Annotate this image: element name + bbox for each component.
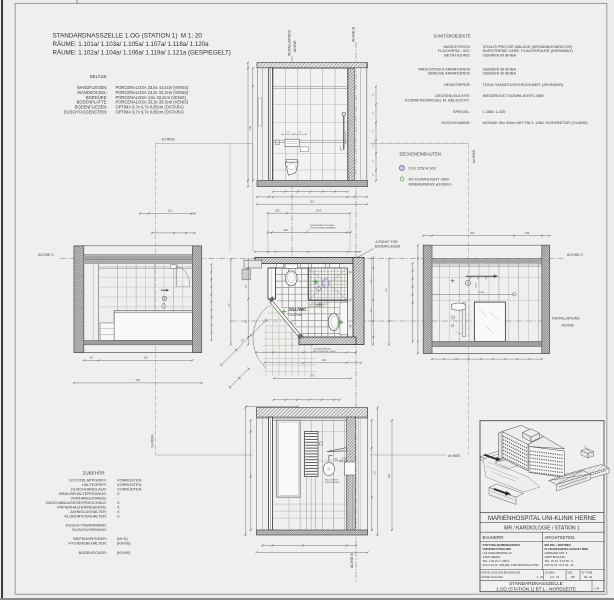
svg-text:150: 150	[525, 231, 530, 235]
svg-text:KOSMETIKSPIEGEL M. BELEUCHT.:: KOSMETIKSPIEGEL M. BELEUCHT.:	[405, 97, 471, 102]
svg-text:RÄUME: 1.102a/ 1.104a/ 1.106a/: RÄUME: 1.102a/ 1.104a/ 1.106a/ 1.119a/ 1…	[53, 50, 231, 57]
svg-text:TEL. 0 23 23 / 1 499-0: TEL. 0 23 23 / 1 499-0	[483, 559, 510, 563]
svg-text:BAUHERR:: BAUHERR:	[483, 535, 505, 540]
svg-text:OPTIMA 9,7x 9,7x 0,85cm (OSTAR: OPTIMA 9,7x 9,7x 0,85cm (OSTARA)	[116, 110, 185, 115]
svg-text:230: 230	[249, 125, 252, 130]
svg-text:1.OG (STATION 1) BT L - NORDSE: 1.OG (STATION 1) BT L - NORDSEITE	[496, 586, 576, 591]
svg-text:44625 HERNE: 44625 HERNE	[483, 555, 501, 559]
svg-text:ZUBEHÖR: ZUBEHÖR	[83, 469, 106, 475]
svg-text:DUSCHTASSENSTEIN:: DUSCHTASSENSTEIN:	[64, 110, 108, 115]
svg-text:UNIVERSITÄTSKLINIK: UNIVERSITÄTSKLINIK	[483, 547, 512, 551]
svg-text:NIEDERVOLT DOWNLIGHTS 35W: NIEDERVOLT DOWNLIGHTS 35W	[483, 93, 544, 98]
svg-text:25.ANNL: 25.ANNL	[545, 571, 555, 574]
svg-text:RÄUME: 1.101a/ 1.103a/ 1.105a/: RÄUME: 1.101a/ 1.103a/ 1.105a/ 1.107a/ 1…	[53, 41, 210, 48]
svg-text:DUSCHKABINE:: DUSCHKABINE:	[441, 120, 470, 125]
svg-text:ACHSE B: ACHSE B	[352, 26, 356, 42]
svg-text:(1.060): (1.060)	[478, 292, 485, 294]
svg-text:-0-PUNKT FÜR: -0-PUNKT FÜR	[375, 240, 398, 244]
svg-text:330: 330	[135, 378, 140, 382]
svg-text:STANDARDNASSZELLE 1.OG (STATIO: STANDARDNASSZELLE 1.OG (STATION 1) M 1: …	[53, 33, 203, 40]
svg-text:EINBAUMASS ø100mm: EINBAUMASS ø100mm	[409, 181, 453, 186]
svg-text:OK 85: OK 85	[475, 283, 477, 288]
svg-text:150: 150	[143, 356, 148, 360]
svg-text:INSTALLATIONS: INSTALLATIONS	[288, 29, 292, 56]
svg-text:4.22 m²: 4.22 m²	[290, 313, 302, 317]
svg-text:110: 110	[283, 228, 288, 232]
svg-text:183: 183	[470, 231, 475, 235]
svg-text:(108/85 VERTIKAL): (108/85 VERTIKAL)	[325, 481, 340, 484]
svg-text:FAX 02 34 / 9 07 62 - 22: FAX 02 34 / 9 07 62 - 22	[545, 563, 575, 567]
svg-text:FAX 0 23 23 / 499-399. 1499 ZE: FAX 0 23 23 / 499-399. 1499 ZENTRALLTUNG	[483, 563, 539, 567]
svg-text:VORRÜSTEN: VORRÜSTEN	[117, 486, 142, 491]
svg-text:BETÄTIGUNG:: BETÄTIGUNG:	[444, 52, 470, 57]
svg-text:AUSSENKANTE ROHBAU: AUSSENKANTE ROHBAU	[310, 224, 335, 227]
svg-text:DECKENEINBAUTEN: DECKENEINBAUTEN	[400, 151, 441, 156]
svg-text:HYGIENEBEHÄLTER:: HYGIENEBEHÄLTER:	[68, 541, 107, 546]
svg-text:1 : 20: 1 : 20	[537, 575, 544, 579]
svg-text:MOSAIK 90x 90cm MIT FALT- UND: MOSAIK 90x 90cm MIT FALT- UND SCHIEBETÜR…	[483, 120, 589, 125]
svg-text:BRAUSE ARMATUREN:: BRAUSE ARMATUREN:	[428, 71, 470, 76]
svg-text:PR: PR	[571, 575, 575, 579]
svg-text:ACHSE: ACHSE	[562, 323, 575, 327]
svg-text:FALT-SCHIEBETÜR (GLAMÜ): FALT-SCHIEBETÜR (GLAMÜ)	[313, 350, 336, 353]
svg-text:FERTIGFUSSBODENMASS: FERTIGFUSSBODENMASS	[310, 227, 336, 230]
svg-text:44807 BOCHUM: 44807 BOCHUM	[545, 555, 566, 559]
svg-text:TOGA /’HANDTUCHTROCKNER’ (ZEHN: TOGA /’HANDTUCHTROCKNER’ (ZEHNDER)	[483, 82, 564, 87]
svg-text:ACHSE B: ACHSE B	[350, 552, 354, 568]
svg-text:DATUM: 20.05.2002 BAUVORLAGE: DATUM: 20.05.2002 BAUVORLAGE	[482, 571, 521, 574]
svg-text:105: 105	[275, 209, 280, 213]
svg-text:BODENFLIESEN: BODENFLIESEN	[375, 245, 401, 249]
svg-text:STIFTUNG MARIENHOSPITAL: STIFTUNG MARIENHOSPITAL	[483, 543, 522, 547]
svg-text:1.165x 1.035: 1.165x 1.035	[483, 109, 506, 114]
svg-text:GEMÄSS IB 8KIBA: GEMÄSS IB 8KIBA	[483, 71, 517, 76]
svg-text:LVS 125/ A 100: LVS 125/ A 100	[409, 165, 437, 170]
svg-text:1m RISS: 1m RISS	[161, 138, 175, 142]
svg-text:110: 110	[322, 358, 327, 362]
svg-text:MR / KARDIOLOGIE / STATION 1: MR / KARDIOLOGIE / STATION 1	[504, 526, 580, 532]
svg-text:TEL. 02 34 / 9 07 60 - 0: TEL. 02 34 / 9 07 60 - 0	[545, 559, 574, 563]
svg-text:A.0 - 01: A.0 - 01	[550, 575, 560, 579]
svg-text:90/90 GEFÄLLE 2%: 90/90 GEFÄLLE 2%	[309, 305, 325, 308]
svg-text:KLOBÜRSTENHALTER:: KLOBÜRSTENHALTER:	[64, 513, 107, 518]
svg-text:HIDDELER STR. 6: HIDDELER STR. 6	[545, 551, 568, 555]
svg-text:(KRHS): (KRHS)	[117, 550, 131, 555]
svg-text:INSTALLATIONS: INSTALLATIONS	[552, 317, 580, 321]
svg-text:STAND: 20.01.2003: STAND: 20.01.2003	[482, 576, 504, 579]
svg-text:DUSCHVORHANG:: DUSCHVORHANG:	[72, 527, 107, 532]
svg-text:GEZ: GEZ	[568, 571, 573, 574]
svg-text:03 - 03: 03 - 03	[584, 575, 593, 579]
svg-text:SPIEGEL:: SPIEGEL:	[453, 109, 471, 114]
svg-text:263: 263	[388, 473, 391, 478]
svg-text:110: 110	[168, 209, 173, 213]
svg-text:MARIENHOSPITAL UNI-KLINIK HERN: MARIENHOSPITAL UNI-KLINIK HERNE	[488, 516, 596, 522]
svg-text:GEMÄSS IB 8KIBA: GEMÄSS IB 8KIBA	[483, 52, 517, 57]
svg-text:(KRHS): (KRHS)	[117, 541, 131, 546]
svg-text:ERLING + PARTNER: ERLING + PARTNER	[545, 543, 571, 547]
svg-text:ST 47 MB: ST 47 MB	[582, 571, 593, 574]
svg-text:1m RISS: 1m RISS	[150, 434, 154, 448]
svg-text:PLANUNGSGESELLSCHAFT MBH: PLANUNGSGESELLSCHAFT MBH	[545, 547, 589, 551]
svg-text:ACHSE C: ACHSE C	[567, 253, 583, 257]
svg-text:1m RISS: 1m RISS	[472, 149, 476, 163]
svg-text:1m RISS: 1m RISS	[448, 454, 461, 458]
svg-text:L 94: L 94	[594, 587, 600, 591]
svg-text:173: 173	[310, 374, 315, 378]
svg-text:BADEHOCKER:: BADEHOCKER:	[79, 550, 107, 555]
svg-text:ARCHITEKTEN:: ARCHITEKTEN:	[545, 535, 576, 540]
svg-text:SANITÄROBJEKTE: SANITÄROBJEKTE	[433, 33, 470, 38]
svg-text:HEIZKÖRPER:: HEIZKÖRPER:	[444, 82, 470, 87]
svg-text:ACHSE: ACHSE	[293, 40, 297, 52]
svg-text:ACHSE C: ACHSE C	[38, 253, 54, 257]
svg-text:141: 141	[374, 470, 377, 475]
svg-text:X: X	[117, 513, 120, 518]
svg-text:HÖLKESKAMPRING 40: HÖLKESKAMPRING 40	[483, 551, 512, 555]
svg-text:BELÄGE: BELÄGE	[90, 74, 107, 79]
svg-text:DU./WC: DU./WC	[289, 307, 307, 312]
svg-text:154: 154	[316, 209, 321, 213]
svg-text:110: 110	[310, 199, 315, 203]
